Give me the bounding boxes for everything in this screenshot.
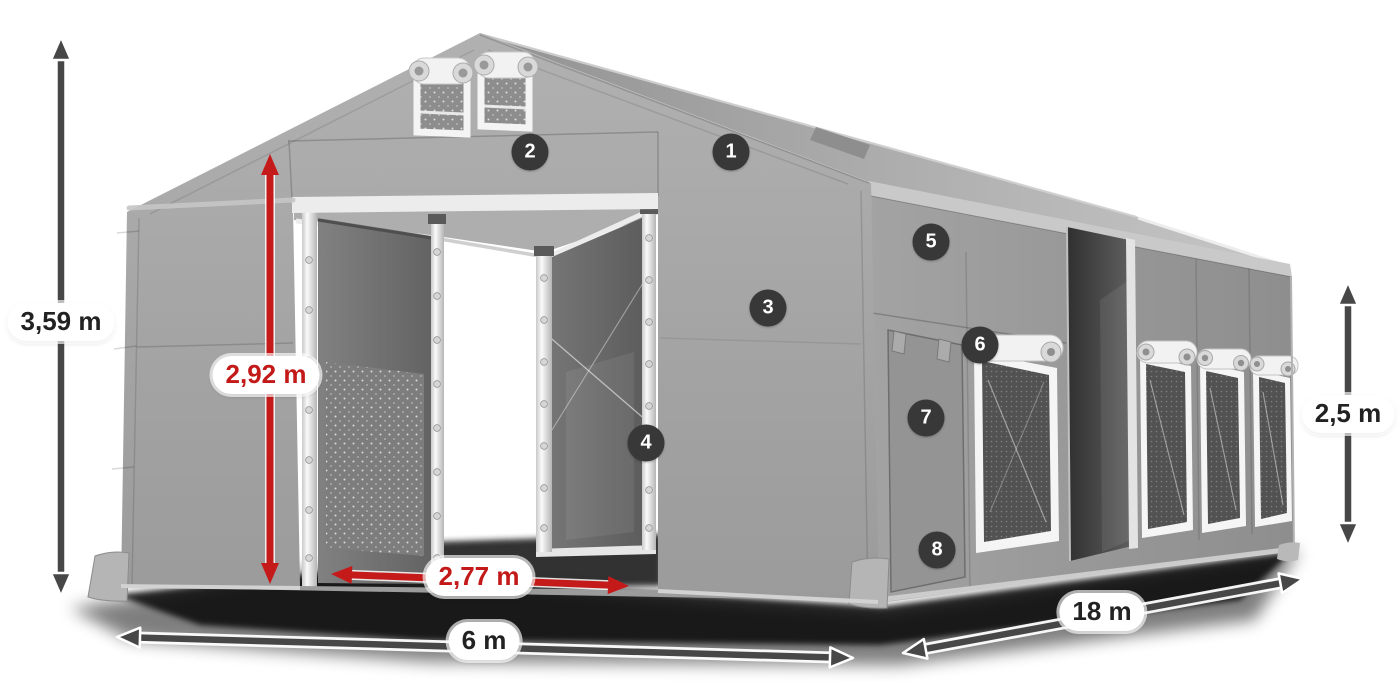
total-height-label: 3,59 m — [8, 303, 115, 341]
door-right — [536, 218, 656, 557]
side-sliding-door-opening — [1067, 227, 1138, 561]
feature-badge-7[interactable]: 7 — [908, 400, 945, 437]
entrance-height-label: 2,92 m — [213, 356, 320, 394]
entrance-width-label: 2,77 m — [426, 558, 533, 596]
front-entrance-interior — [294, 204, 660, 590]
feature-badge-8[interactable]: 8 — [919, 532, 956, 569]
feature-badge-1[interactable]: 1 — [713, 134, 750, 171]
feature-badge-3[interactable]: 3 — [750, 290, 787, 327]
side-window-3 — [1197, 349, 1251, 533]
mesh-door-left — [302, 218, 444, 590]
gable-vent-window-2 — [474, 52, 538, 128]
feature-badge-6[interactable]: 6 — [962, 327, 999, 364]
feature-badge-4[interactable]: 4 — [628, 425, 665, 462]
feature-badge-2[interactable]: 2 — [512, 134, 549, 171]
side-window-2 — [1137, 341, 1197, 538]
side-window-1 — [971, 335, 1063, 553]
feature-badge-5[interactable]: 5 — [913, 224, 950, 261]
gable-vent-window-1 — [409, 58, 473, 134]
tent-product-visualization: 3,59 m 2,92 m 2,77 m 6 m 18 m 2,5 m 1 2 … — [0, 0, 1400, 700]
side-length-label: 18 m — [1059, 593, 1144, 631]
side-wall-height-label: 2,5 m — [1302, 395, 1395, 433]
tent-illustration — [0, 0, 1400, 700]
front-width-label: 6 m — [449, 622, 520, 660]
